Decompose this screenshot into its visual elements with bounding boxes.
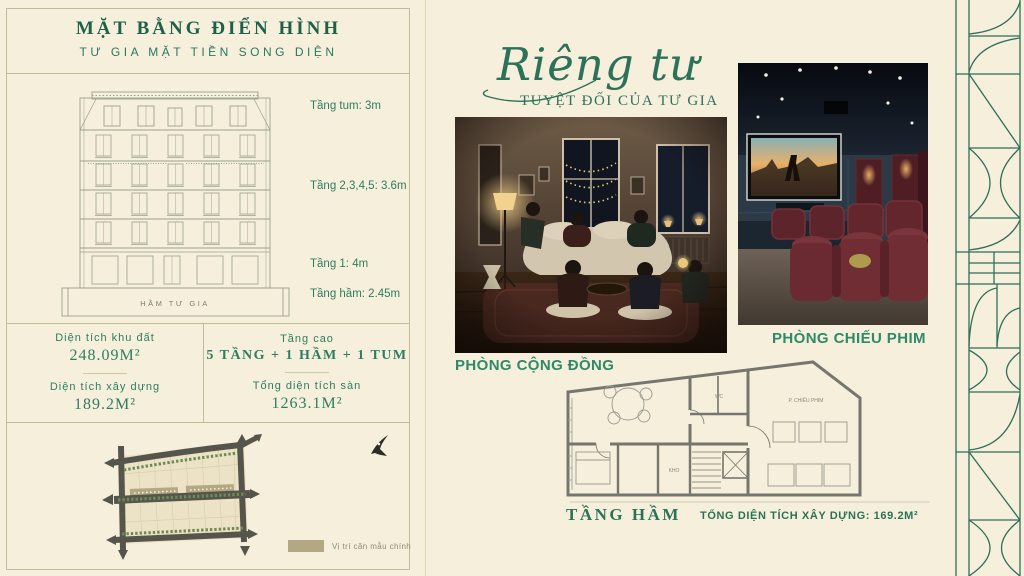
building-elevation-drawing: HẦM TƯ GIA (58, 78, 294, 320)
cinema-room-photo (738, 63, 928, 325)
stat-build-area-value: 189.2M² (74, 396, 136, 414)
divider-below-stats (7, 422, 410, 423)
page-separator (425, 0, 426, 576)
stat-land-area-value: 248.09M² (69, 347, 140, 365)
art-deco-border-pattern (953, 0, 1023, 576)
stat-land-area-label: Diện tích khu đất (55, 332, 155, 344)
stat-build-area-label: Diện tích xây dựng (50, 381, 160, 393)
map-legend: Vị trí căn mẫu chính (288, 540, 411, 552)
window-grid (87, 132, 264, 248)
plan-room-cinema: P. CHIẾU PHIM (789, 397, 824, 404)
floor-label-tum: Tầng tum: 3m (310, 100, 381, 112)
stats-left-cell: Diện tích khu đất 248.09M² Diện tích xây… (7, 324, 203, 422)
divider-under-title (7, 73, 410, 74)
plan-room-storage: KHO (669, 468, 680, 474)
stat-divider (83, 373, 127, 374)
stat-total-floor-area-label: Tổng diện tích sàn (253, 380, 362, 392)
stat-floors-value: 5 TẦNG + 1 HẦM + 1 TUM (206, 348, 407, 364)
page-title: MẶT BẰNG ĐIỂN HÌNH (7, 18, 410, 40)
stat-total-floor-area-value: 1263.1M² (271, 395, 342, 413)
floor-label-ground: Tầng 1: 4m (310, 258, 368, 270)
plan-caption: TẦNG HẦM (566, 505, 681, 525)
compass-icon (368, 432, 394, 460)
stat-floors-label: Tầng cao (280, 333, 334, 345)
floor-label-typical: Tầng 2,3,4,5: 3.6m (310, 180, 407, 192)
basement-label: HẦM TƯ GIA (140, 298, 210, 308)
stats-right-cell: Tầng cao 5 TẦNG + 1 HẦM + 1 TUM Tổng diệ… (204, 324, 410, 422)
headline-sub: TUYỆT ĐỐI CỦA TƯ GIA (520, 93, 719, 110)
legend-label: Vị trí căn mẫu chính (332, 542, 411, 551)
page-subtitle: TƯ GIA MẶT TIỀN SONG DIỆN (7, 45, 410, 59)
community-room-photo (455, 117, 727, 353)
plan-total-area: TỔNG DIỆN TÍCH XÂY DỰNG: 169.2M² (700, 510, 918, 522)
site-plan-map (92, 430, 307, 568)
stat-divider (285, 372, 329, 373)
panel-header: MẶT BẰNG ĐIỂN HÌNH TƯ GIA MẶT TIỀN SONG … (7, 18, 410, 59)
plan-room-wc: WC (715, 394, 724, 400)
floor-label-basement: Tầng hầm: 2.45m (310, 288, 400, 300)
cinema-room-caption: PHÒNG CHIẾU PHIM (772, 330, 926, 347)
legend-swatch (288, 540, 324, 552)
basement-floor-plan: WC P. CHIẾU PHIM KHO (558, 352, 935, 505)
